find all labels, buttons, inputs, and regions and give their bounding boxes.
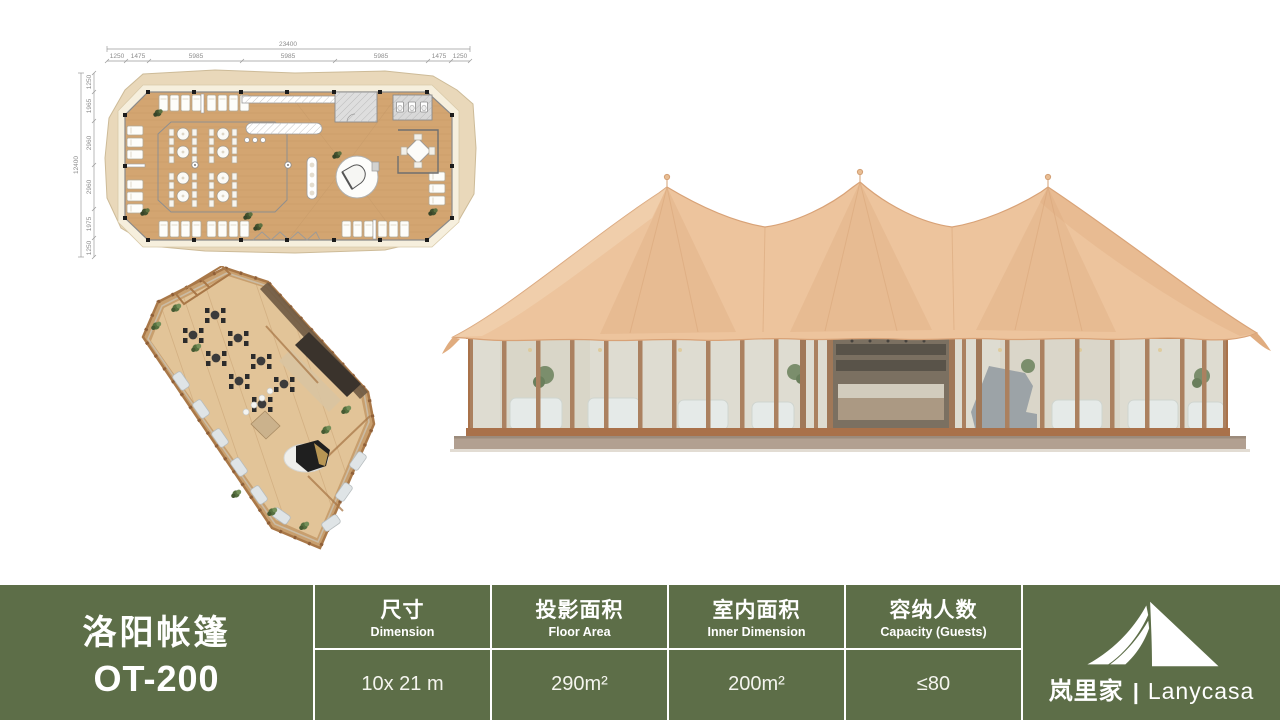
tent-logo-icon xyxy=(1076,599,1228,669)
dim-seg: 1975 xyxy=(86,216,93,231)
spec-column-capacity: 容纳人数 Capacity (Guests) ≤80 xyxy=(844,585,1021,720)
dim-seg: 1250 xyxy=(110,53,125,60)
glass-tint xyxy=(470,339,1226,428)
dim-seg: 1965 xyxy=(86,98,93,113)
lounge-chairs-top xyxy=(159,94,249,113)
dim-seg: 5985 xyxy=(374,53,389,60)
dim-seg: 1250 xyxy=(86,240,93,255)
dim-seg: 5985 xyxy=(281,53,296,60)
product-model-code: OT-200 xyxy=(93,658,219,700)
product-name-cn: 洛阳帐篷 xyxy=(83,605,231,654)
brand-logo-block: 岚里家 | Lanycasa xyxy=(1021,585,1280,720)
center-pole-dot xyxy=(194,164,196,166)
spec-value-dimension: 10x 21 m xyxy=(315,650,490,718)
center-pole-dot xyxy=(287,164,289,166)
dim-seg: 1250 xyxy=(86,74,93,89)
brand-name-cn: 岚里家 xyxy=(1049,671,1124,706)
spec-value-floor-area: 290m² xyxy=(492,650,667,718)
brand-name: 岚里家 | Lanycasa xyxy=(1049,671,1255,706)
tent-spec-sheet: { "floor_plan": { "width_total": "23400"… xyxy=(0,0,1280,720)
dim-seg: 5985 xyxy=(189,53,204,60)
spec-label-cn: 投影面积 xyxy=(536,594,624,624)
deck-platform-edge xyxy=(454,436,1246,439)
dim-seg: 1475 xyxy=(131,53,146,60)
tent-exterior-render xyxy=(440,160,1280,460)
ground-shadow xyxy=(450,449,1250,452)
spec-label-cn: 室内面积 xyxy=(713,594,801,624)
spec-column-floor-area: 投影面积 Floor Area 290m² xyxy=(490,585,667,720)
dim-seg: 2960 xyxy=(86,179,93,194)
spec-label-cn: 尺寸 xyxy=(381,594,425,624)
grand-piano-platform xyxy=(336,156,379,198)
spec-bar: 洛阳帐篷 OT-200 尺寸 Dimension 10x 21 m 投影面积 F… xyxy=(0,585,1280,720)
brand-name-en: Lanycasa xyxy=(1148,678,1254,705)
dim-width-total: 23400 xyxy=(279,41,297,48)
dim-seg: 1475 xyxy=(432,53,447,60)
spec-column-dimension: 尺寸 Dimension 10x 21 m xyxy=(313,585,490,720)
dim-seg: 1250 xyxy=(453,53,468,60)
spec-label-en: Floor Area xyxy=(548,625,610,639)
spec-value-capacity: ≤80 xyxy=(846,650,1021,718)
spec-label-en: Dimension xyxy=(371,625,435,639)
display-shelf xyxy=(307,157,317,199)
spec-value-inner-dimension: 200m² xyxy=(669,650,844,718)
floor-plan-drawing: 23400 1250 1475 5985 5985 5985 1475 1250… xyxy=(55,38,480,273)
canvas-roof xyxy=(442,182,1271,354)
spec-column-inner-dimension: 室内面积 Inner Dimension 200m² xyxy=(667,585,844,720)
dim-height-total: 12400 xyxy=(73,156,80,174)
dim-seg: 2960 xyxy=(86,135,93,150)
brand-separator: | xyxy=(1133,679,1139,705)
spec-label-en: Inner Dimension xyxy=(708,625,806,639)
isometric-interior-view xyxy=(118,266,438,566)
product-title-block: 洛阳帐篷 OT-200 xyxy=(0,585,313,720)
spec-label-en: Capacity (Guests) xyxy=(880,625,986,639)
spec-label-cn: 容纳人数 xyxy=(890,594,978,624)
